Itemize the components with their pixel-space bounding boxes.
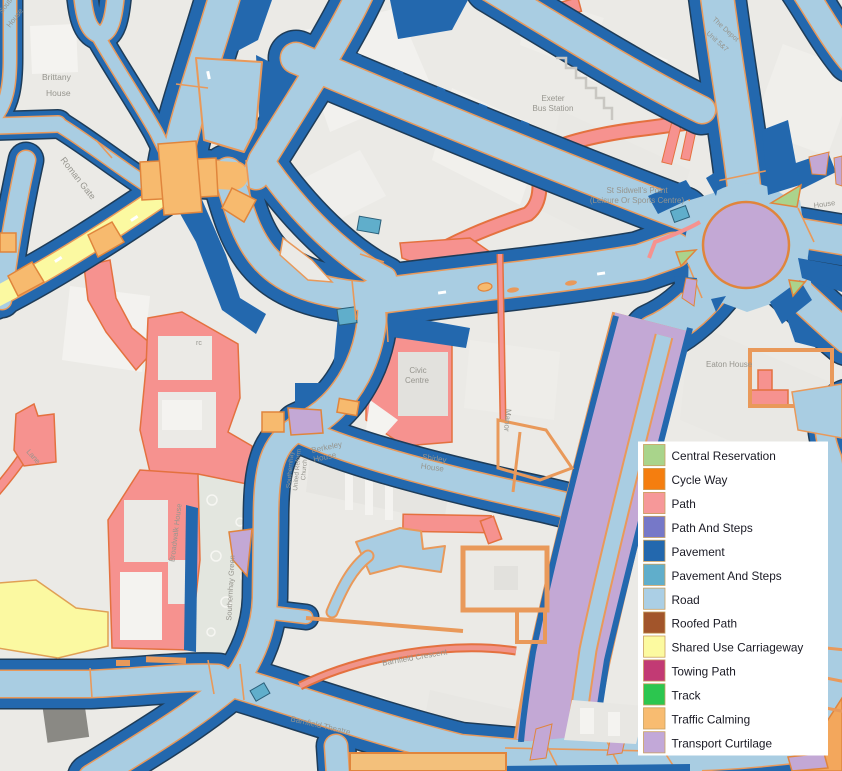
svg-text:Path: Path (672, 497, 696, 511)
svg-text:Transport Curtilage: Transport Curtilage (672, 736, 773, 750)
svg-text:Shared Use Carriageway: Shared Use Carriageway (672, 641, 804, 655)
svg-text:Centre: Centre (405, 376, 430, 385)
svg-text:Towing Path: Towing Path (672, 665, 736, 679)
svg-text:Cycle Way: Cycle Way (672, 473, 728, 487)
svg-text:Bus Station: Bus Station (533, 104, 574, 113)
svg-text:rc: rc (196, 340, 202, 347)
svg-text:Exeter: Exeter (541, 94, 564, 103)
svg-text:House: House (46, 88, 71, 98)
svg-text:(Leisure Or Sports Centre): (Leisure Or Sports Centre) (590, 196, 685, 205)
svg-text:Road: Road (672, 593, 700, 607)
svg-text:Civic: Civic (409, 366, 426, 375)
svg-text:Path And Steps: Path And Steps (672, 521, 753, 535)
svg-text:Pavement And Steps: Pavement And Steps (672, 569, 782, 583)
svg-text:Pavement: Pavement (672, 545, 726, 559)
svg-text:Roofed Path: Roofed Path (672, 617, 738, 631)
svg-text:Eaton House: Eaton House (706, 360, 753, 369)
svg-text:Brittany: Brittany (42, 72, 72, 82)
svg-text:Central Reservation: Central Reservation (672, 449, 776, 463)
svg-text:Traffic Calming: Traffic Calming (672, 713, 751, 727)
svg-text:St Sidwell's Point: St Sidwell's Point (606, 186, 668, 195)
svg-text:Track: Track (672, 689, 701, 703)
